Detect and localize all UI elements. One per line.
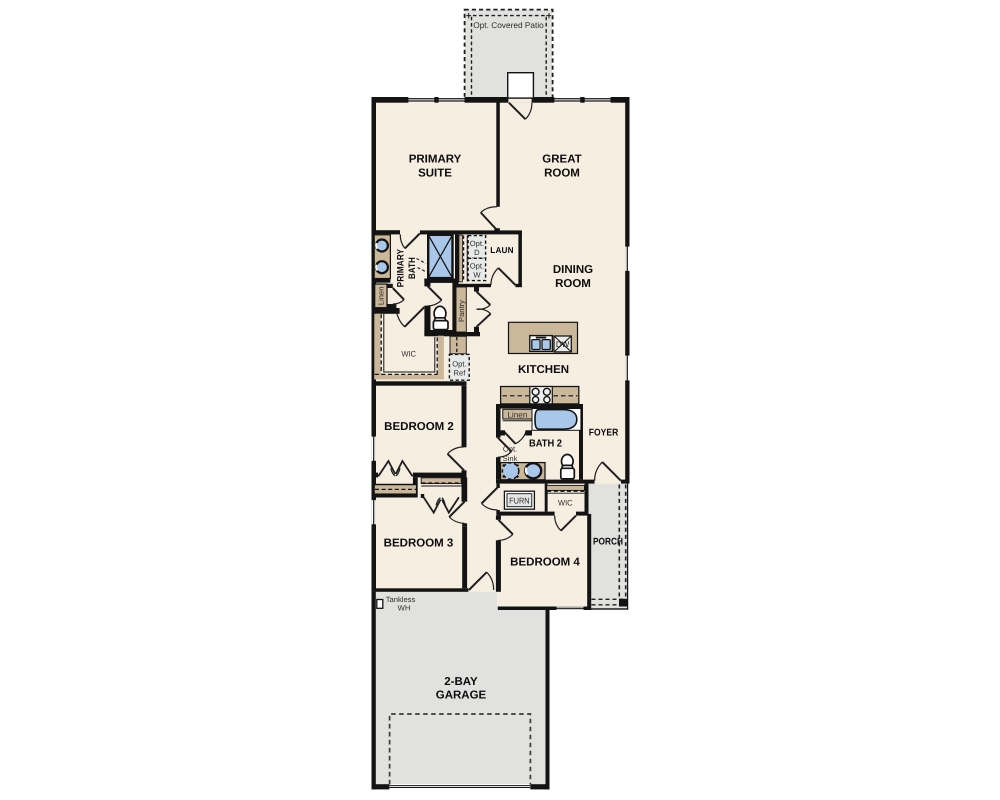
svg-text:KITCHEN: KITCHEN xyxy=(518,364,569,376)
svg-text:DINING: DINING xyxy=(553,264,593,276)
svg-text:BEDROOM 3: BEDROOM 3 xyxy=(384,537,454,549)
svg-text:PORCH: PORCH xyxy=(593,537,623,548)
svg-text:FOYER: FOYER xyxy=(589,428,619,439)
svg-text:GREAT: GREAT xyxy=(542,154,581,166)
svg-text:2-BAY: 2-BAY xyxy=(444,676,478,688)
svg-text:DW: DW xyxy=(556,340,570,349)
svg-text:WH: WH xyxy=(398,603,411,612)
svg-text:W: W xyxy=(473,271,481,280)
svg-text:Pantry: Pantry xyxy=(457,300,466,322)
svg-text:GARAGE: GARAGE xyxy=(436,689,487,701)
svg-text:Opt.: Opt. xyxy=(503,444,517,453)
svg-text:BEDROOM 4: BEDROOM 4 xyxy=(510,556,580,568)
svg-text:PRIMARY: PRIMARY xyxy=(409,154,462,166)
svg-text:ROOM: ROOM xyxy=(544,167,580,179)
svg-text:Opt.: Opt. xyxy=(452,359,466,368)
svg-text:Linen: Linen xyxy=(507,410,527,419)
svg-text:Linen: Linen xyxy=(376,287,385,306)
svg-text:FURN: FURN xyxy=(509,495,530,505)
svg-text:LAUN: LAUN xyxy=(490,245,514,255)
svg-text:PRIMARY: PRIMARY xyxy=(395,248,406,287)
svg-text:SUITE: SUITE xyxy=(418,167,452,179)
svg-text:Ref: Ref xyxy=(453,368,466,377)
svg-text:Opt. Covered Patio: Opt. Covered Patio xyxy=(473,20,544,30)
svg-text:WIC: WIC xyxy=(558,498,573,507)
svg-text:WIC: WIC xyxy=(402,349,417,358)
svg-text:Opt.: Opt. xyxy=(470,239,484,248)
svg-text:BATH 2: BATH 2 xyxy=(529,439,562,450)
svg-text:BEDROOM 2: BEDROOM 2 xyxy=(384,421,454,433)
svg-text:Sink: Sink xyxy=(503,454,518,463)
svg-text:D: D xyxy=(474,248,480,257)
svg-text:ROOM: ROOM xyxy=(555,278,591,290)
svg-text:BATH: BATH xyxy=(406,257,417,279)
svg-text:Opt.: Opt. xyxy=(470,262,484,271)
